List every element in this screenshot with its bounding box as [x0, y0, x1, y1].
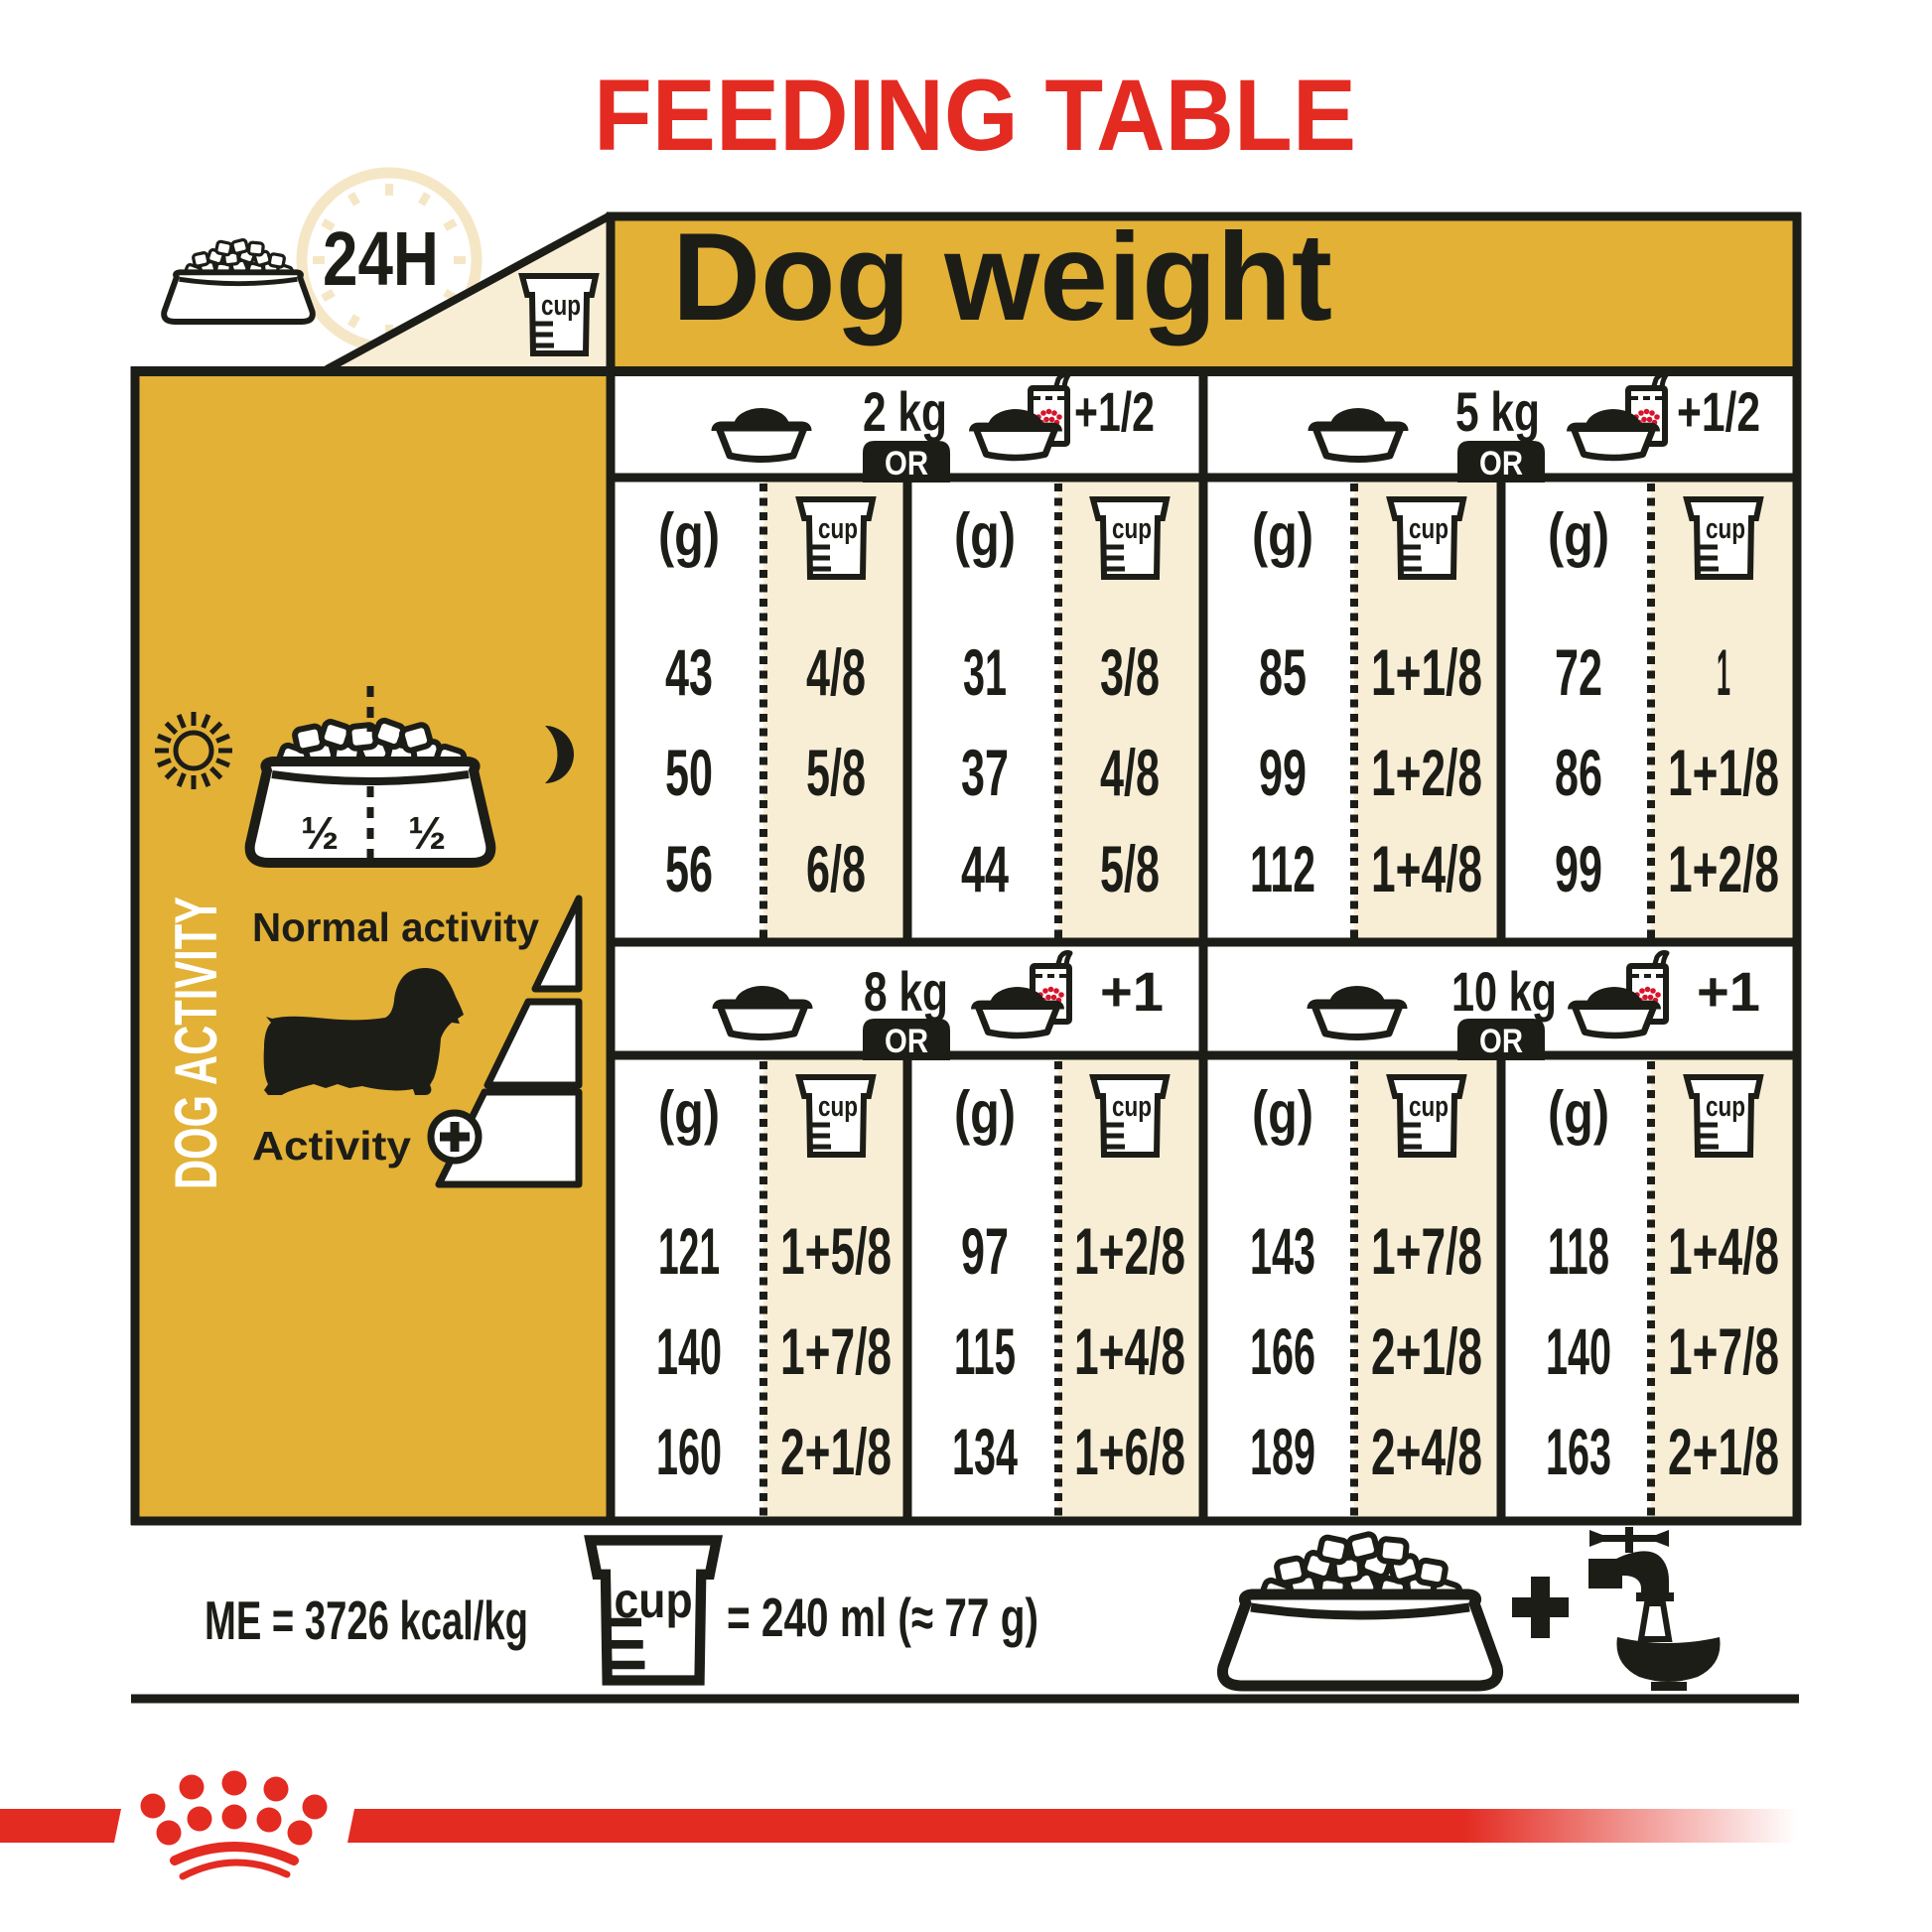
svg-text:ME = 3726 kcal/kg: ME = 3726 kcal/kg	[205, 1589, 528, 1651]
svg-text:43: 43	[665, 635, 713, 709]
svg-text:31: 31	[963, 635, 1007, 709]
svg-text:(g): (g)	[1252, 501, 1313, 568]
svg-text:189: 189	[1250, 1415, 1315, 1488]
svg-text:+1/2: +1/2	[1677, 380, 1760, 443]
svg-text:143: 143	[1250, 1214, 1315, 1288]
svg-text:(g): (g)	[954, 1079, 1016, 1146]
svg-text:1+7/8: 1+7/8	[1371, 1214, 1482, 1288]
svg-text:1+4/8: 1+4/8	[1371, 832, 1482, 905]
svg-text:163: 163	[1546, 1415, 1611, 1488]
svg-text:4/8: 4/8	[806, 635, 866, 709]
svg-text:(g): (g)	[1252, 1079, 1313, 1146]
svg-text:2+4/8: 2+4/8	[1371, 1415, 1482, 1488]
svg-text:10 kg: 10 kg	[1451, 960, 1557, 1023]
svg-text:(g): (g)	[1548, 501, 1609, 568]
svg-text:56: 56	[665, 832, 713, 905]
svg-text:37: 37	[961, 736, 1009, 809]
svg-text:99: 99	[1259, 736, 1307, 809]
svg-text:(g): (g)	[658, 1079, 720, 1146]
svg-text:(g): (g)	[954, 501, 1016, 568]
svg-text:99: 99	[1555, 832, 1602, 905]
svg-text:1+7/8: 1+7/8	[780, 1314, 892, 1388]
svg-text:+1/2: +1/2	[1074, 380, 1155, 443]
svg-text:1+4/8: 1+4/8	[1074, 1314, 1185, 1388]
svg-text:72: 72	[1555, 635, 1602, 709]
svg-text:(g): (g)	[658, 501, 720, 568]
svg-text:6/8: 6/8	[806, 832, 866, 905]
svg-text:85: 85	[1259, 635, 1307, 709]
svg-text:1+2/8: 1+2/8	[1074, 1214, 1185, 1288]
svg-text:1+4/8: 1+4/8	[1668, 1214, 1779, 1288]
svg-text:50: 50	[665, 736, 713, 809]
svg-text:1+1/8: 1+1/8	[1668, 736, 1779, 809]
svg-text:Dog weight: Dog weight	[672, 208, 1332, 346]
svg-text:1+6/8: 1+6/8	[1074, 1415, 1185, 1488]
svg-text:+1: +1	[1697, 960, 1760, 1023]
svg-text:140: 140	[1546, 1314, 1611, 1388]
svg-text:160: 160	[656, 1415, 722, 1488]
svg-text:118: 118	[1548, 1214, 1609, 1288]
svg-text:112: 112	[1250, 832, 1315, 905]
svg-text:½: ½	[408, 807, 446, 859]
svg-text:(g): (g)	[1548, 1079, 1609, 1146]
svg-text:2 kg: 2 kg	[863, 380, 947, 443]
svg-text:DOG ACTIVITY: DOG ACTIVITY	[163, 897, 229, 1189]
svg-text:= 240 ml (≈ 77 g): = 240 ml (≈ 77 g)	[727, 1587, 1038, 1648]
svg-text:2+1/8: 2+1/8	[780, 1415, 892, 1488]
svg-text:2+1/8: 2+1/8	[1668, 1415, 1779, 1488]
svg-text:FEEDING TABLE: FEEDING TABLE	[594, 59, 1356, 172]
svg-text:86: 86	[1555, 736, 1602, 809]
svg-text:121: 121	[658, 1214, 720, 1288]
svg-text:4/8: 4/8	[1100, 736, 1160, 809]
svg-text:½: ½	[301, 807, 339, 859]
svg-text:Normal activity: Normal activity	[252, 904, 539, 950]
svg-text:1+7/8: 1+7/8	[1668, 1314, 1779, 1388]
svg-text:5/8: 5/8	[1100, 832, 1160, 905]
svg-text:140: 140	[656, 1314, 722, 1388]
svg-text:5 kg: 5 kg	[1455, 380, 1540, 443]
svg-text:166: 166	[1250, 1314, 1315, 1388]
svg-text:3/8: 3/8	[1100, 635, 1160, 709]
svg-text:1+5/8: 1+5/8	[780, 1214, 892, 1288]
svg-text:44: 44	[961, 832, 1009, 905]
svg-text:5/8: 5/8	[806, 736, 866, 809]
svg-text:1+1/8: 1+1/8	[1371, 635, 1482, 709]
svg-text:2+1/8: 2+1/8	[1371, 1314, 1482, 1388]
svg-text:+1: +1	[1100, 960, 1164, 1023]
svg-text:1: 1	[1717, 635, 1730, 709]
svg-text:134: 134	[952, 1415, 1018, 1488]
svg-text:24H: 24H	[323, 216, 439, 302]
svg-text:97: 97	[961, 1214, 1009, 1288]
svg-text:1+2/8: 1+2/8	[1371, 736, 1482, 809]
svg-text:8 kg: 8 kg	[864, 960, 948, 1023]
svg-text:Activity: Activity	[252, 1123, 411, 1169]
svg-text:115: 115	[954, 1314, 1016, 1388]
svg-text:1+2/8: 1+2/8	[1668, 832, 1779, 905]
